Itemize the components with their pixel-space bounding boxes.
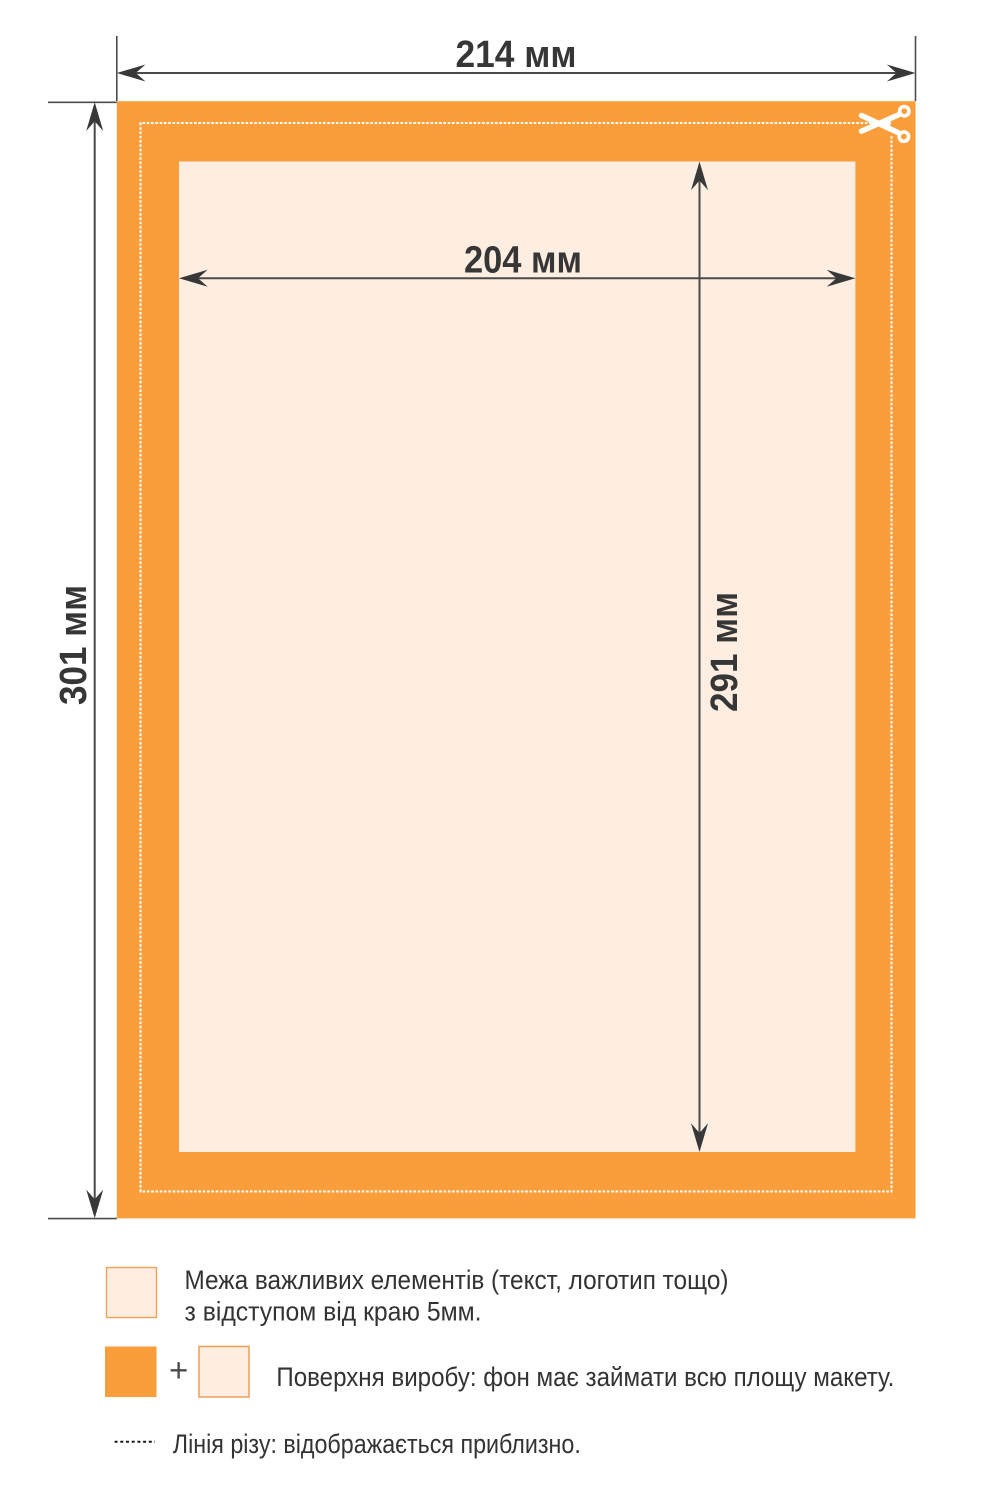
svg-text:204 мм: 204 мм [464,239,582,281]
svg-text:214 мм: 214 мм [456,34,577,76]
svg-text:Поверхня виробу: фон має займа: Поверхня виробу: фон має займати всю пло… [276,1362,894,1392]
svg-text:з відступом від краю 5мм.: з відступом від краю 5мм. [185,1297,482,1327]
svg-text:291 мм: 291 мм [704,592,746,712]
svg-text:+: + [169,1352,188,1389]
svg-text:301 мм: 301 мм [53,585,95,705]
svg-text:Лінія різу: відображається при: Лінія різу: відображається приблизно. [173,1429,581,1459]
svg-text:Межа важливих елементів (текст: Межа важливих елементів (текст, логотип … [185,1265,729,1295]
